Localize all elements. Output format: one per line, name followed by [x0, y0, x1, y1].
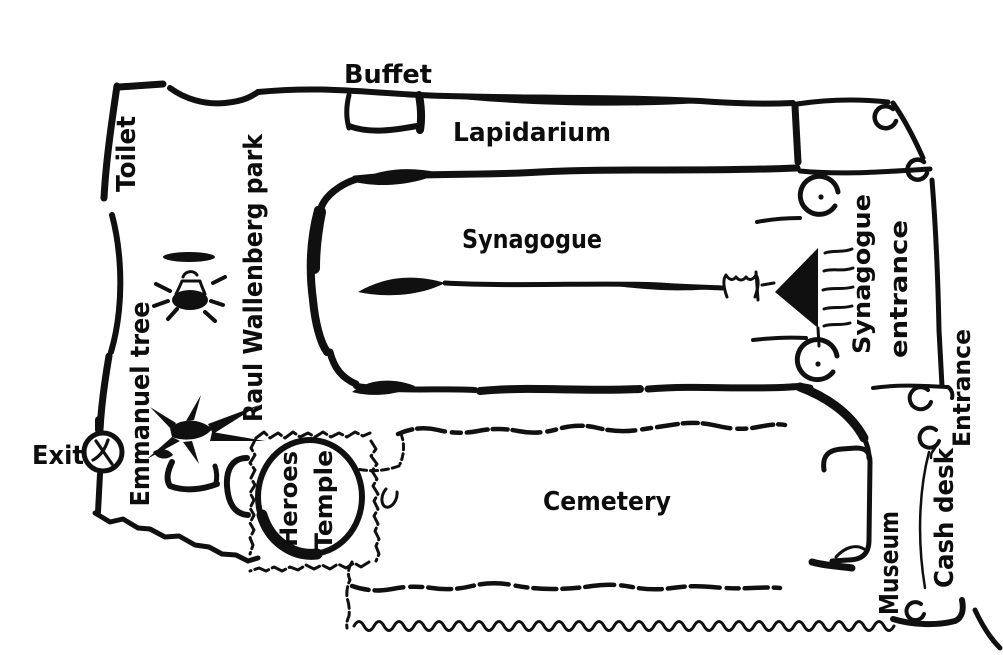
roof-door-icon-1 [875, 106, 896, 128]
path-marker [382, 489, 397, 507]
synagogue-porch-icon [775, 248, 818, 328]
label-cemetery: Cemetery [543, 487, 671, 517]
map-canvas: Buffet Lapidarium Toilet Raul Wallenberg… [0, 0, 1003, 655]
label-lapidarium: Lapidarium [453, 118, 611, 148]
fountain-icon [154, 252, 225, 321]
museum-door-icon [906, 602, 924, 620]
crown-icon [724, 272, 774, 300]
synagogue-east-end [753, 176, 853, 379]
site-map: Buffet Lapidarium Toilet Raul Wallenberg… [0, 0, 1003, 655]
label-raul-wallenberg-park: Raul Wallenberg park [239, 133, 269, 422]
label-buffet: Buffet [344, 60, 432, 90]
label-entrance: Entrance [948, 329, 976, 447]
label-synagogue: Synagogue [462, 225, 602, 255]
label-heroes-temple-line2: Temple [310, 450, 338, 550]
gate-arch-icon [227, 458, 248, 515]
cemetery-boundary [347, 423, 894, 631]
bench-icon [168, 462, 217, 489]
synagogue-dome-south-icon [797, 340, 837, 380]
synagogue-interior-line [358, 272, 774, 300]
label-toilet: Toilet [112, 116, 142, 192]
exit-gate-icon [84, 433, 122, 471]
buffet-stand-icon [347, 95, 421, 131]
label-emmanuel-tree: Emmanuel tree [126, 302, 156, 507]
label-heroes-temple-line1: Heroes [275, 451, 303, 547]
label-museum: Museum [875, 511, 905, 615]
cash-desk-window-icon-1 [910, 387, 931, 409]
label-exit: Exit [32, 441, 84, 471]
label-cash-desk: Cash desk [930, 447, 960, 588]
label-synagogue-entrance-line1: Synagogue [848, 194, 876, 354]
label-synagogue-entrance-line2: entrance [885, 220, 913, 358]
